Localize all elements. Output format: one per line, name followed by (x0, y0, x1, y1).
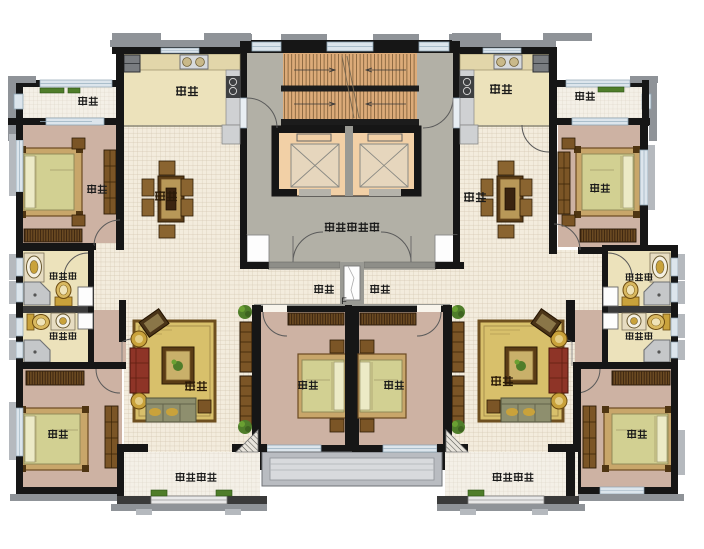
svg-text:F: F (341, 296, 347, 306)
